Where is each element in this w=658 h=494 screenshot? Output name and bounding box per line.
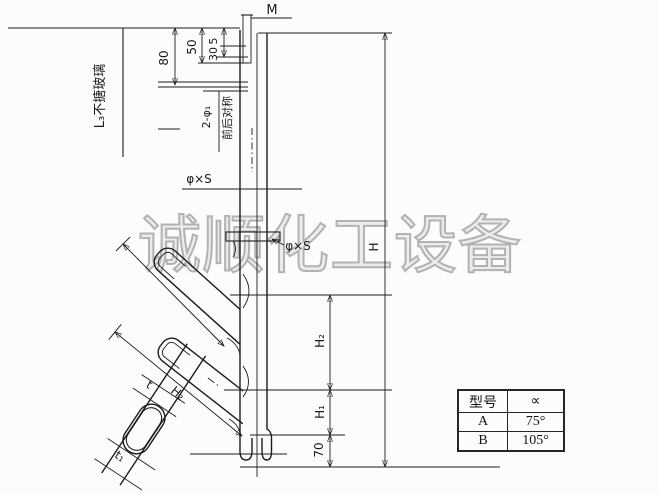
tube-spec-main-label: φ×S	[186, 172, 212, 186]
spec-cell-angle-b: 105°	[508, 432, 563, 450]
dim-t-label: t	[144, 377, 156, 391]
spec-table-row-a: A 75°	[459, 413, 563, 432]
dim-30-label: 30	[207, 47, 220, 61]
spec-table-header-angle: ∝	[508, 391, 563, 412]
right-dimensions	[190, 33, 500, 467]
symmetry-note: 前后对称	[220, 96, 234, 140]
spec-cell-angle-a: 75°	[508, 413, 563, 431]
dim-80-label: 80	[157, 50, 171, 65]
spec-table: 型号 ∝ A 75° B 105°	[457, 389, 565, 452]
branch-dimension-lines	[109, 237, 242, 436]
dim-5-label: 5	[207, 38, 220, 45]
tube-spec-branch-label: φ×S	[285, 239, 311, 253]
thread-size-label: M	[266, 3, 277, 18]
dim-70-label: 70	[312, 442, 326, 457]
top-left-lines	[8, 28, 240, 157]
dim-H-label: H	[367, 242, 381, 251]
sight-glass-assembly: t t₁	[84, 332, 223, 494]
dim-50-label: 50	[185, 39, 199, 54]
branch-centerline-dash	[208, 378, 220, 387]
spec-table-header-row: 型号 ∝	[459, 391, 563, 413]
scanned-drawing-page: 诚顺化工设备 L₃不搪玻璃	[0, 0, 658, 494]
holes-label: 2-φ₁	[200, 106, 213, 129]
spec-cell-model-a: A	[459, 413, 508, 431]
spec-table-row-b: B 105°	[459, 432, 563, 450]
dim-H2-right-label: H₂	[313, 334, 327, 348]
top-dimensions	[158, 28, 248, 152]
spec-table-header-model: 型号	[459, 391, 508, 412]
spec-cell-model-b: B	[459, 432, 508, 450]
dim-H1-label: H₁	[313, 405, 327, 419]
coupling-flange	[226, 232, 284, 257]
branch-upper	[150, 244, 257, 344]
no-lining-note: L₃不搪玻璃	[92, 64, 108, 128]
